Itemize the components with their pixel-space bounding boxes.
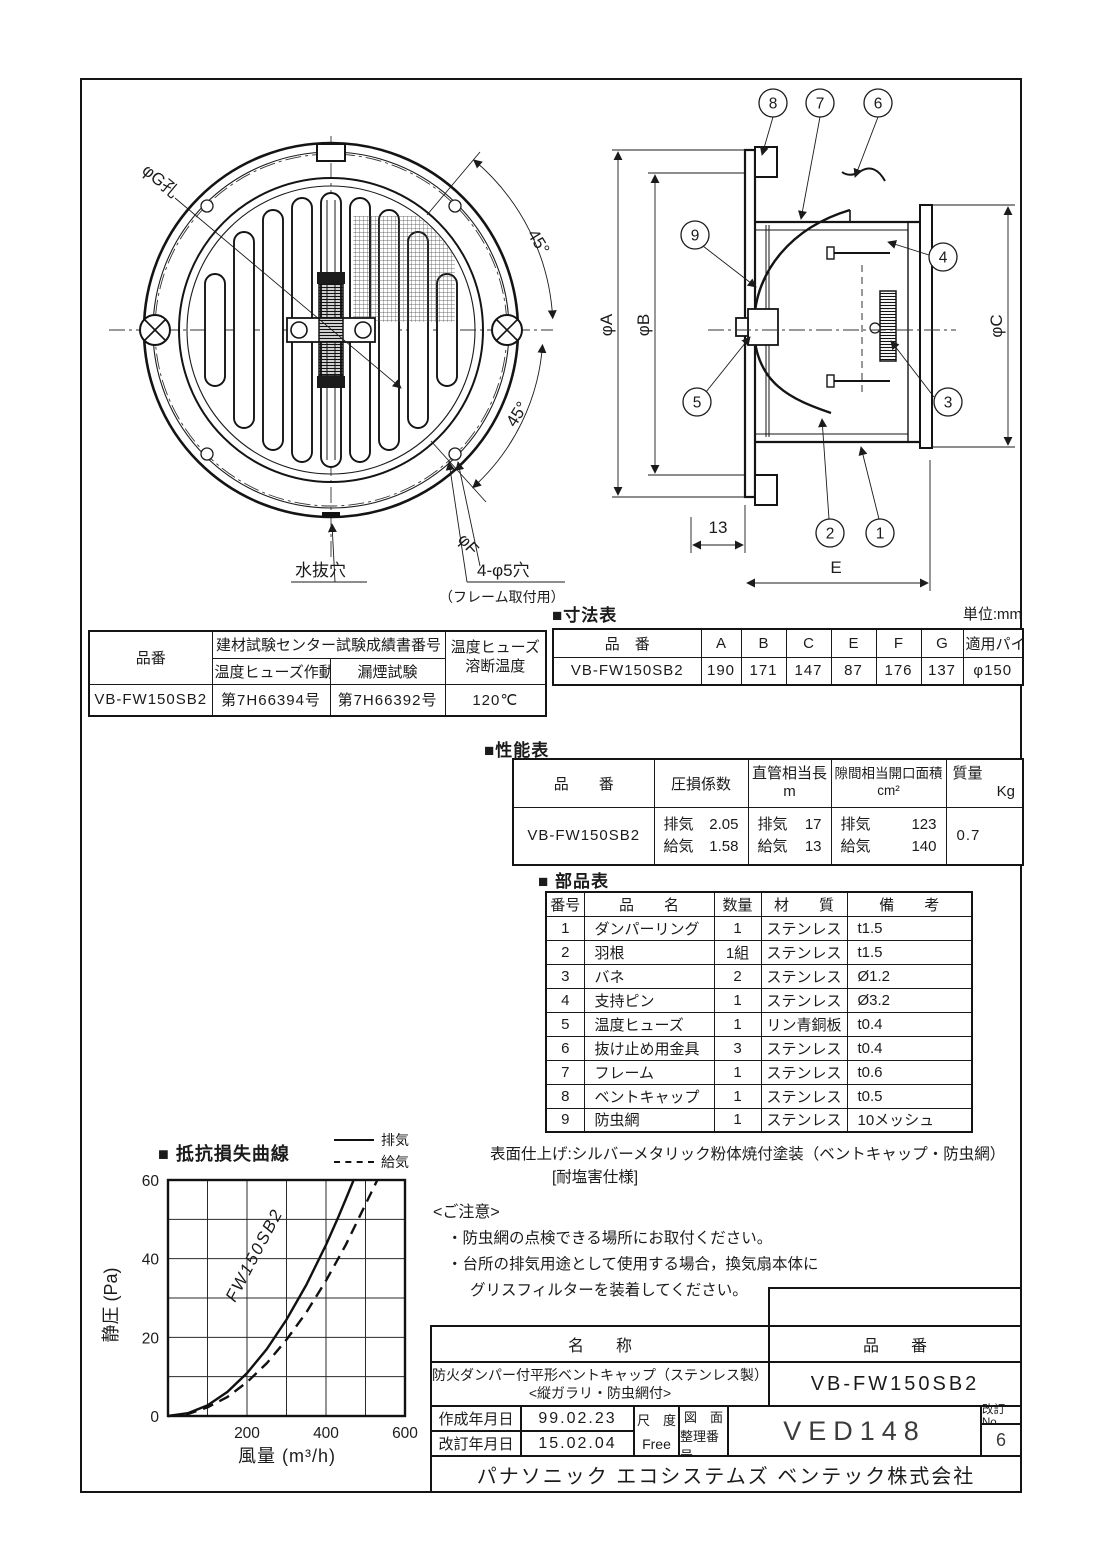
dim-13-label: 13 bbox=[709, 518, 728, 537]
parts-table-row: 8ベントキャップ1ステンレスt0.5 bbox=[546, 1084, 972, 1108]
dim-b: 171 bbox=[741, 657, 786, 685]
parts-h-material: 材 質 bbox=[761, 892, 847, 916]
drawing-sheet: 45° 45° φG孔 φF 水抜穴 4-φ5穴 （フレーム取付用） bbox=[0, 0, 1100, 1557]
dim-e: 87 bbox=[831, 657, 876, 685]
mount-holes-leader bbox=[449, 462, 467, 582]
parts-table-cell: 9 bbox=[546, 1108, 584, 1132]
dim-c: 147 bbox=[786, 657, 831, 685]
callout-5: 5 bbox=[693, 395, 702, 412]
mount-holes-note: （フレーム取付用） bbox=[439, 589, 565, 605]
parts-table-cell: 10メッシュ bbox=[847, 1108, 972, 1132]
parts-table-cell: ベントキャップ bbox=[584, 1084, 714, 1108]
parts-table-cell: 6 bbox=[546, 1036, 584, 1060]
chart-tick-label: 60 bbox=[142, 1173, 160, 1190]
notice-item-3: グリスフィルターを装着してください。 bbox=[470, 1278, 748, 1300]
parts-table-cell: 2 bbox=[546, 940, 584, 964]
test-certificate-table: 品番 建材試験センター試験成績書番号 温度ヒューズ 溶断温度 温度ヒューズ作動試… bbox=[88, 630, 547, 717]
finish-note-line2: [耐塩害仕様] bbox=[552, 1165, 638, 1187]
parts-table-cell: ステンレス bbox=[761, 1036, 847, 1060]
revision-number: 6 bbox=[980, 1423, 1022, 1457]
parts-table-cell: 温度ヒューズ bbox=[584, 1012, 714, 1036]
parts-table-row: 6抜け止め用金具3ステンレスt0.4 bbox=[546, 1036, 972, 1060]
callout-3: 3 bbox=[944, 395, 953, 412]
dim-h-pipe: 適用パイプ bbox=[963, 629, 1023, 657]
parts-table-cell: 3 bbox=[546, 964, 584, 988]
parts-table-cell: 3 bbox=[714, 1036, 761, 1060]
parts-table-cell: 1 bbox=[714, 1084, 761, 1108]
test-h-smoketest: 漏煙試験 bbox=[330, 658, 445, 684]
parts-table-cell: 抜け止め用金具 bbox=[584, 1036, 714, 1060]
pivot-hole-left bbox=[291, 322, 307, 338]
callout-6: 6 bbox=[874, 96, 883, 113]
callout-7: 7 bbox=[816, 96, 825, 113]
perf-duct: 排気17 給気13 bbox=[748, 807, 831, 865]
parts-table-cell: 支持ピン bbox=[584, 988, 714, 1012]
parts-table-row: 9防虫網1ステンレス10メッシュ bbox=[546, 1108, 972, 1132]
dim-E-label: E bbox=[830, 558, 841, 577]
perf-h-gap: 隙間相当開口面積 cm² bbox=[831, 759, 946, 807]
test-h-fusetemp: 温度ヒューズ 溶断温度 bbox=[445, 631, 546, 684]
revision-label: 改訂No. bbox=[980, 1405, 1022, 1425]
side-dimensions bbox=[612, 150, 1015, 591]
drawing-number-value: VED148 bbox=[727, 1405, 982, 1457]
parts-table-row: 1ダンパーリング1ステンレスt1.5 bbox=[546, 916, 972, 940]
notice-item-1: ・防虫網の点検できる場所にお取付ください。 bbox=[447, 1226, 772, 1248]
dim-h-a: A bbox=[701, 629, 741, 657]
test-h-fusetemp-line1: 温度ヒューズ bbox=[448, 639, 544, 658]
dim-phiA-label: φA bbox=[598, 313, 616, 336]
parts-table-cell: 1 bbox=[714, 1012, 761, 1036]
dim-pipe: φ150 bbox=[963, 657, 1023, 685]
parts-table-cell: 2 bbox=[714, 964, 761, 988]
test-h-fusetemp-line2: 溶断温度 bbox=[448, 658, 544, 677]
spring-coil bbox=[880, 291, 896, 361]
perf-gap: 排気123 給気140 bbox=[831, 807, 946, 865]
parts-table-row: 3バネ2ステンレスØ1.2 bbox=[546, 964, 972, 988]
performance-table: 品 番 圧損係数 直管相当長 m 隙間相当開口面積 cm² 質量 Kg VB-F… bbox=[512, 758, 1024, 866]
titleblock-product-name: 防火ダンパー付平形ベントキャップ（ステンレス製） <縦ガラリ・防虫網付> bbox=[430, 1361, 770, 1407]
perf-h-mass: 質量 Kg bbox=[946, 759, 1023, 807]
parts-table-cell: t0.6 bbox=[847, 1060, 972, 1084]
resistance-loss-chart: 2004006000204060 FW150SB2 bbox=[85, 1128, 430, 1480]
parts-table-cell: Ø3.2 bbox=[847, 988, 972, 1012]
side-view-drawing: φA φB φC 13 E 8 7 6 9 bbox=[598, 85, 1030, 605]
chart-tick-label: 600 bbox=[392, 1425, 418, 1442]
perf-h-duct-line1: 直管相当長 bbox=[751, 765, 829, 784]
parts-table-cell: リン青銅板 bbox=[761, 1012, 847, 1036]
chart-tick-label: 20 bbox=[142, 1330, 160, 1347]
parts-table-row: 7フレーム1ステンレスt0.6 bbox=[546, 1060, 972, 1084]
parts-table-cell: 1 bbox=[714, 916, 761, 940]
callout-2: 2 bbox=[826, 526, 835, 543]
dim-a: 190 bbox=[701, 657, 741, 685]
chart-tick-label: 400 bbox=[313, 1425, 339, 1442]
dimension-table: 品 番 A B C E F G 適用パイプ VB-FW150SB2 190 17… bbox=[552, 628, 1024, 686]
titleblock-name-header: 名 称 bbox=[430, 1325, 770, 1363]
parts-table-cell: 1 bbox=[714, 1108, 761, 1132]
scale-value: Free bbox=[642, 1436, 671, 1452]
test-h-product: 品番 bbox=[89, 631, 212, 684]
parts-table-row: 5温度ヒューズ1リン青銅板t0.4 bbox=[546, 1012, 972, 1036]
parts-table-cell: ステンレス bbox=[761, 1084, 847, 1108]
scale-cell: 尺 度 Free bbox=[633, 1405, 680, 1457]
parts-table-cell: 防虫網 bbox=[584, 1108, 714, 1132]
parts-h-remarks: 備 考 bbox=[847, 892, 972, 916]
dim-g: 137 bbox=[921, 657, 963, 685]
perf-h-duct-line2: m bbox=[751, 783, 829, 802]
parts-table-cell: 1 bbox=[714, 1060, 761, 1084]
parts-table-cell: ステンレス bbox=[761, 964, 847, 988]
perf-product: VB-FW150SB2 bbox=[513, 807, 654, 865]
parts-table-cell: Ø1.2 bbox=[847, 964, 972, 988]
dim-h-b: B bbox=[741, 629, 786, 657]
perf-h-loss: 圧損係数 bbox=[654, 759, 748, 807]
parts-h-qty: 数量 bbox=[714, 892, 761, 916]
parts-table-cell: t0.4 bbox=[847, 1012, 972, 1036]
parts-table-cell: 羽根 bbox=[584, 940, 714, 964]
titleblock-empty-cell bbox=[768, 1287, 1022, 1327]
test-fusetemp: 120℃ bbox=[445, 684, 546, 716]
dim-f: 176 bbox=[876, 657, 921, 685]
parts-table-cell: バネ bbox=[584, 964, 714, 988]
callout-8: 8 bbox=[769, 96, 778, 113]
parts-table-row: 4支持ピン1ステンレスØ3.2 bbox=[546, 988, 972, 1012]
created-date-value: 99.02.23 bbox=[520, 1405, 635, 1432]
product-name-line2: <縦ガラリ・防虫網付> bbox=[529, 1384, 671, 1402]
screw-icon-right bbox=[492, 315, 522, 345]
perf-h-gap-line1: 隙間相当開口面積 bbox=[834, 766, 944, 783]
parts-table-cell: ステンレス bbox=[761, 1060, 847, 1084]
chart-tick-label: 0 bbox=[150, 1409, 159, 1426]
parts-table-cell: t1.5 bbox=[847, 916, 972, 940]
revised-date-label: 改訂年月日 bbox=[430, 1430, 522, 1457]
scale-label: 尺 度 bbox=[637, 1410, 676, 1429]
side-body bbox=[736, 147, 932, 505]
test-h-fusetest: 温度ヒューズ作動試験 bbox=[212, 658, 330, 684]
bolt-circle-label: φF bbox=[454, 530, 482, 559]
dwg-label-line1: 図 面 bbox=[684, 1407, 723, 1426]
dim-product: VB-FW150SB2 bbox=[553, 657, 701, 685]
drain-hole bbox=[322, 512, 340, 518]
insect-mesh bbox=[353, 216, 455, 322]
parts-table-cell: フレーム bbox=[584, 1060, 714, 1084]
parts-table-cell: 8 bbox=[546, 1084, 584, 1108]
parts-table-cell: 5 bbox=[546, 1012, 584, 1036]
perf-mass: 0.7 bbox=[946, 807, 1023, 865]
parts-table-cell: t1.5 bbox=[847, 940, 972, 964]
company-name: パナソニック エコシステムズ ベンテック株式会社 bbox=[430, 1455, 1022, 1493]
mount-holes-label: 4-φ5穴 bbox=[477, 561, 530, 580]
angle-bottom-label: 45° bbox=[502, 398, 532, 430]
perf-h-product: 品 番 bbox=[513, 759, 654, 807]
callout-9: 9 bbox=[691, 228, 700, 245]
parts-table-cell: ステンレス bbox=[761, 916, 847, 940]
top-tab bbox=[317, 144, 345, 161]
parts-table-cell: 1組 bbox=[714, 940, 761, 964]
test-smoketest-no: 第7H66392号 bbox=[330, 684, 445, 716]
perf-h-mass-line1: 質量 bbox=[949, 765, 1021, 784]
callout-1: 1 bbox=[876, 526, 885, 543]
created-date-label: 作成年月日 bbox=[430, 1405, 522, 1432]
test-h-group: 建材試験センター試験成績書番号 bbox=[212, 631, 445, 658]
parts-h-name: 品 名 bbox=[584, 892, 714, 916]
pivot-hole-right bbox=[355, 322, 371, 338]
parts-table-cell: ステンレス bbox=[761, 940, 847, 964]
angle-top-label: 45° bbox=[524, 226, 554, 258]
callout-4: 4 bbox=[939, 250, 948, 267]
unit-note: 単位:mm bbox=[902, 603, 1022, 624]
notice-item-2: ・台所の排気用途として使用する場合，換気扇本体に bbox=[447, 1252, 819, 1274]
drain-label: 水抜穴 bbox=[295, 561, 346, 580]
revised-date-value: 15.02.04 bbox=[520, 1430, 635, 1457]
parts-table-cell: t0.4 bbox=[847, 1036, 972, 1060]
dim-h-product: 品 番 bbox=[553, 629, 701, 657]
fuse-lead-wire bbox=[842, 169, 885, 181]
drawing-number-label-cell: 図 面 整理番号 bbox=[678, 1405, 729, 1457]
perf-loss: 排気2.05 給気1.58 bbox=[654, 807, 748, 865]
dim-phiC-label: φC bbox=[987, 314, 1006, 337]
titleblock-product-header: 品 番 bbox=[768, 1325, 1022, 1363]
product-name-line1: 防火ダンパー付平形ベントキャップ（ステンレス製） bbox=[432, 1366, 768, 1384]
dim-phiB-label: φB bbox=[634, 314, 653, 336]
perf-h-mass-line2: Kg bbox=[949, 783, 1021, 802]
parts-table-cell: 4 bbox=[546, 988, 584, 1012]
parts-table-cell: ステンレス bbox=[761, 1108, 847, 1132]
hole-g-label: φG孔 bbox=[138, 161, 182, 202]
screw-icon-left bbox=[140, 315, 170, 345]
parts-table-cell: 1 bbox=[546, 916, 584, 940]
parts-table-title: ■ 部品表 bbox=[538, 867, 609, 892]
dim-h-e: E bbox=[831, 629, 876, 657]
parts-table: 番号 品 名 数量 材 質 備 考 1ダンパーリング1ステンレスt1.52羽根1… bbox=[545, 891, 973, 1133]
test-product: VB-FW150SB2 bbox=[89, 684, 212, 716]
damper-spring bbox=[319, 284, 343, 376]
parts-h-no: 番号 bbox=[546, 892, 584, 916]
parts-table-cell: ステンレス bbox=[761, 988, 847, 1012]
finish-note-line1: 表面仕上げ:シルバーメタリック粉体焼付塗装（ベントキャップ・防虫網） bbox=[490, 1142, 1005, 1164]
perf-h-duct: 直管相当長 m bbox=[748, 759, 831, 807]
hub-block bbox=[748, 309, 778, 345]
dimension-table-title: ■寸法表 bbox=[552, 601, 617, 626]
chart-tick-label: 200 bbox=[234, 1425, 260, 1442]
parts-table-cell: 1 bbox=[714, 988, 761, 1012]
parts-table-cell: t0.5 bbox=[847, 1084, 972, 1108]
front-view-drawing: 45° 45° φG孔 φF 水抜穴 4-φ5穴 （フレーム取付用） bbox=[95, 88, 567, 616]
notice-title: <ご注意> bbox=[433, 1198, 500, 1222]
parts-table-cell: ダンパーリング bbox=[584, 916, 714, 940]
dim-h-g: G bbox=[921, 629, 963, 657]
dim-h-c: C bbox=[786, 629, 831, 657]
dim-h-f: F bbox=[876, 629, 921, 657]
curve-label: FW150SB2 bbox=[222, 1205, 287, 1305]
parts-table-cell: 7 bbox=[546, 1060, 584, 1084]
perf-h-gap-line2: cm² bbox=[834, 783, 944, 800]
parts-table-row: 2羽根1組ステンレスt1.5 bbox=[546, 940, 972, 964]
test-fusetest-no: 第7H66394号 bbox=[212, 684, 330, 716]
chart-tick-label: 40 bbox=[142, 1252, 160, 1269]
